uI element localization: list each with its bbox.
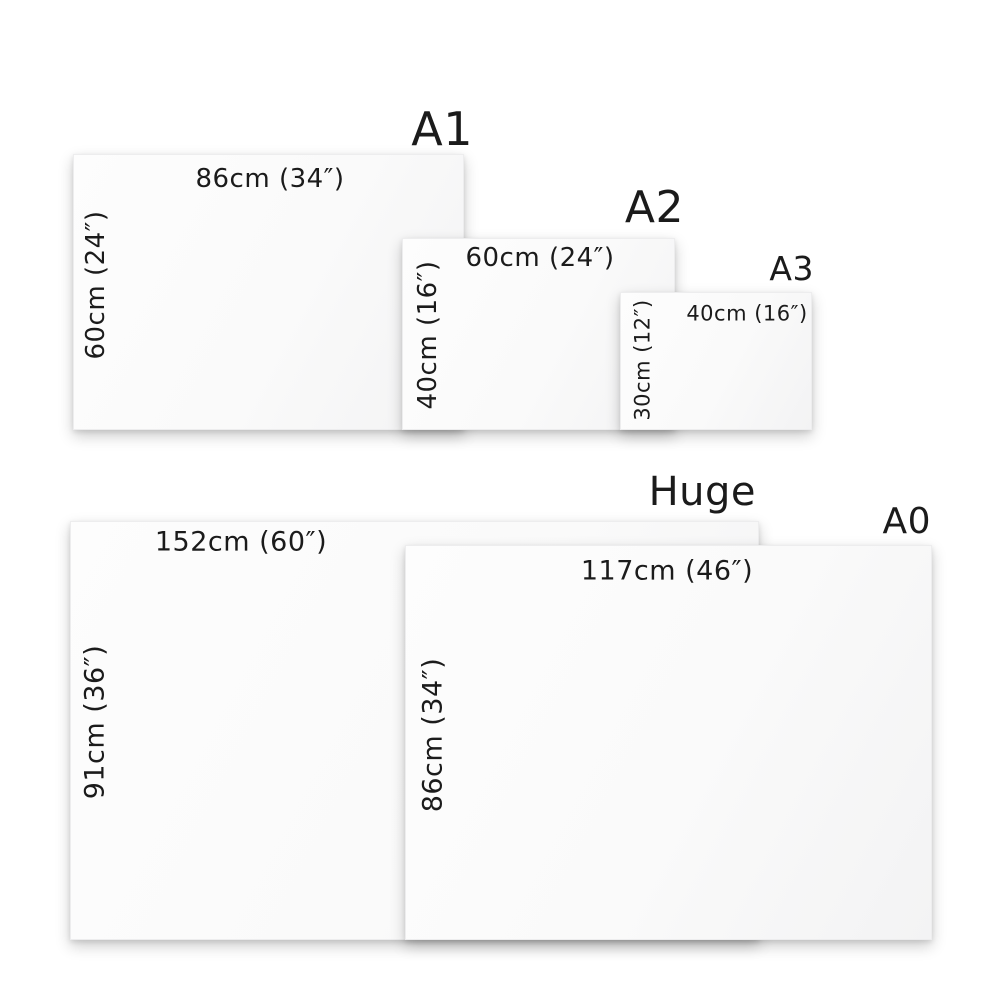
size-name-a1: A1 [411, 106, 473, 152]
size-name-a0: A0 [882, 504, 931, 540]
a0-height-label: 86cm (34″) [420, 658, 447, 813]
a0-width-label: 117cm (46″) [581, 558, 753, 585]
size-name-a2: A2 [625, 186, 684, 230]
canvas-a3: A3 40cm (16″) 30cm (12″) [620, 292, 812, 430]
size-comparison-diagram: A1 86cm (34″) 60cm (24″) A2 60cm (24″) 4… [0, 0, 1000, 1000]
canvas-a0: A0 117cm (46″) 86cm (34″) [405, 545, 932, 940]
size-name-a3: A3 [769, 252, 814, 285]
a3-width-label: 40cm (16″) [686, 304, 807, 325]
huge-height-label: 91cm (36″) [82, 645, 109, 800]
size-name-huge: Huge [649, 472, 756, 512]
a1-width-label: 86cm (34″) [195, 166, 344, 192]
huge-width-label: 152cm (60″) [155, 529, 327, 556]
a3-height-label: 30cm (12″) [633, 299, 654, 420]
a2-width-label: 60cm (24″) [465, 245, 614, 271]
a1-height-label: 60cm (24″) [83, 210, 109, 359]
a2-height-label: 40cm (16″) [415, 260, 441, 409]
